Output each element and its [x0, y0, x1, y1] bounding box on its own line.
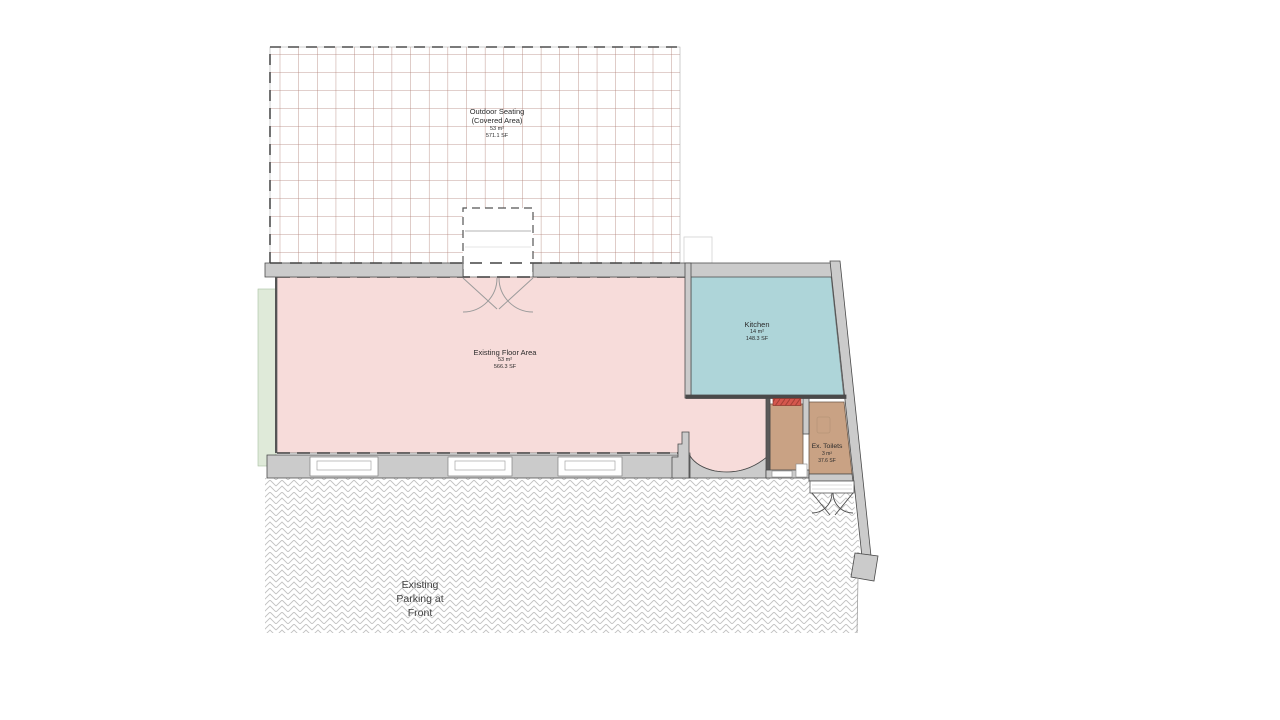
window-sill [455, 461, 505, 470]
toilet-vestibule [770, 404, 803, 472]
kitchen-divider-wall [685, 263, 691, 398]
door-marker-red-hatch [773, 399, 801, 406]
floor-plan-canvas: Outdoor Seating (Covered Area) 53 m² 571… [0, 0, 1280, 720]
side-strip [258, 289, 276, 466]
vestibule-west-wall [766, 398, 770, 478]
window-sill [565, 461, 615, 470]
east-wall-pier [851, 553, 878, 581]
floor-plan-drawing [0, 0, 1280, 720]
toilet-stub-wall [803, 398, 809, 434]
window-sill [317, 461, 371, 470]
vestibule-niche [796, 464, 807, 477]
toilets-door-band [810, 481, 854, 493]
entry-porch [463, 208, 533, 277]
top-wall-left [265, 263, 463, 277]
kitchen-south-wall [686, 395, 846, 399]
door-marker-red [773, 399, 801, 406]
toilets-south-wall [809, 474, 853, 481]
west-wall-line [275, 277, 277, 453]
vestibule-opening [772, 471, 792, 477]
kitchen-room [691, 266, 844, 398]
toilets-room [809, 402, 852, 474]
parking-area [265, 478, 861, 633]
small-annex-outline [684, 237, 712, 263]
